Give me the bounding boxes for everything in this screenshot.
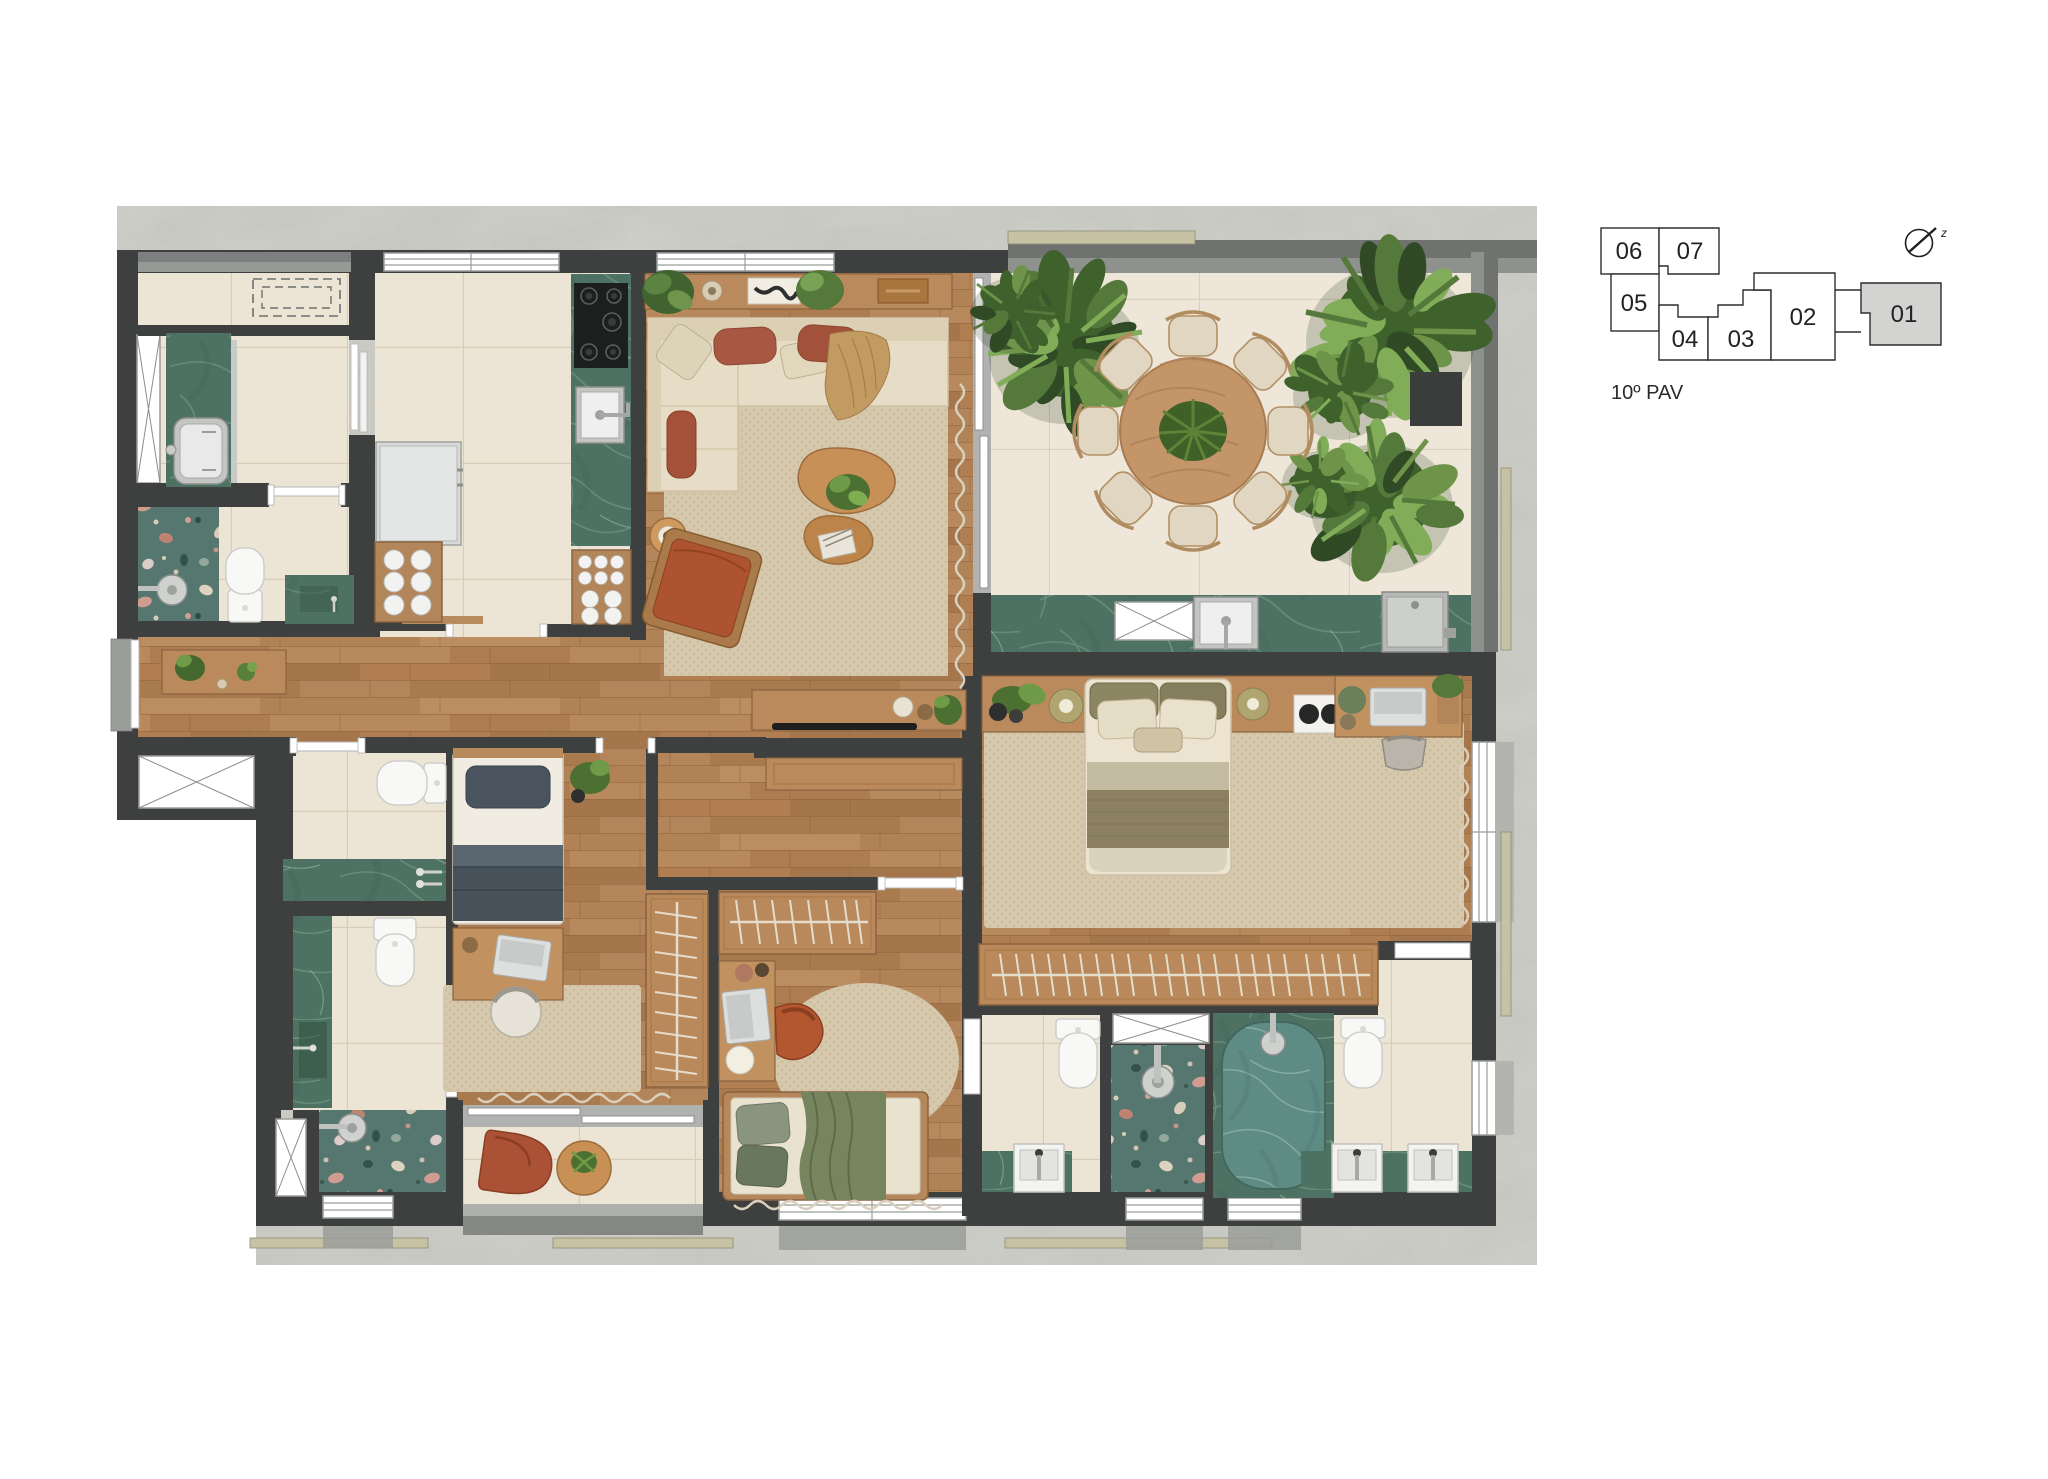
svg-text:03: 03	[1728, 326, 1755, 353]
svg-text:z: z	[1940, 226, 1947, 240]
svg-text:05: 05	[1621, 290, 1648, 317]
svg-text:06: 06	[1616, 238, 1643, 265]
svg-text:10º PAV: 10º PAV	[1611, 382, 1684, 404]
svg-text:01: 01	[1891, 301, 1918, 328]
svg-text:02: 02	[1790, 304, 1817, 331]
svg-text:07: 07	[1677, 238, 1704, 265]
svg-text:04: 04	[1672, 326, 1699, 353]
